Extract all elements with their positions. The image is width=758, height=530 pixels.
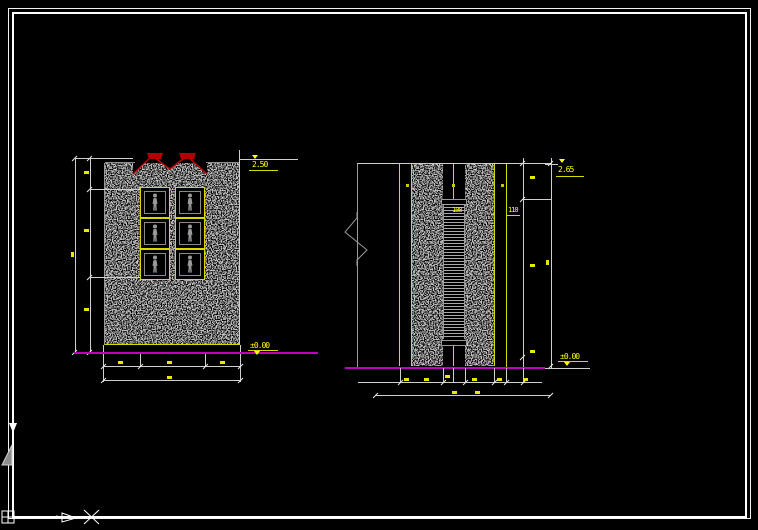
dim-text-illegible (71, 252, 74, 257)
frame-mat (144, 191, 166, 214)
break-symbol-icon (340, 212, 372, 266)
border-footer-glyphs (0, 505, 110, 529)
frame-mat (179, 253, 201, 276)
hatch-marker (406, 184, 409, 187)
level-value-bottom: ±0.00 (560, 353, 579, 361)
panel-cap-bottom (441, 340, 467, 346)
dim-line (551, 158, 552, 368)
person-figure-icon (185, 255, 195, 274)
level-underline (558, 361, 588, 362)
pen-arrow-icon (62, 513, 76, 522)
level-value-bottom: ±0.00 (250, 342, 269, 350)
dim-text-illegible (472, 378, 477, 381)
picture-frame (140, 249, 170, 280)
dim-line (75, 158, 76, 353)
level-value-top: 2.65 (558, 166, 573, 174)
person-figure-icon (150, 255, 160, 274)
dim-ext-line (90, 189, 140, 190)
dim-line (103, 380, 240, 381)
wall-right-edge (239, 150, 240, 345)
section-line (399, 163, 400, 366)
border-arrow-down-icon (0, 415, 30, 475)
picture-frame (175, 249, 205, 280)
hatch-edge-line (494, 163, 495, 366)
dim-ext-line (90, 277, 140, 278)
dim-line (375, 395, 550, 396)
level-triangle-icon (559, 159, 565, 163)
wall-left-edge (104, 163, 105, 345)
dim-text-illegible (84, 171, 89, 174)
dim-text-illegible (84, 308, 89, 311)
level-triangle-icon (254, 351, 260, 355)
offset-dim-text: 110 (508, 207, 518, 214)
dim-text-illegible (167, 361, 172, 364)
dim-text-illegible (523, 378, 528, 381)
section-hatch-right (465, 163, 494, 366)
level-triangle-icon (252, 155, 258, 159)
dim-ext-line (453, 368, 454, 382)
picture-frame (140, 187, 170, 218)
person-figure-icon (150, 224, 160, 243)
dim-underline (506, 215, 520, 216)
louver-panel (443, 204, 465, 339)
level-underline (248, 350, 278, 351)
dim-text-illegible (84, 229, 89, 232)
dim-text-illegible (167, 376, 172, 379)
level-line (545, 368, 590, 369)
dim-text-illegible (497, 378, 502, 381)
cad-viewport[interactable]: 2.50 ±0.00 100 110 (0, 0, 758, 530)
dim-line (103, 366, 240, 367)
level-underline (556, 176, 584, 177)
hatch-edge-line (411, 163, 412, 366)
picture-frame (140, 218, 170, 249)
dim-text-illegible (546, 260, 549, 265)
panel-centerline (453, 345, 454, 366)
section-hatch-left (412, 163, 443, 366)
dim-line (523, 158, 524, 368)
person-figure-icon (150, 193, 160, 212)
level-line (545, 164, 558, 165)
ground-line (345, 367, 545, 369)
dim-text-illegible (404, 378, 409, 381)
dim-text-illegible (530, 264, 535, 267)
level-underline (249, 170, 278, 171)
wall-hatch (105, 163, 240, 345)
level-triangle-icon (564, 362, 570, 366)
frame-mat (179, 191, 201, 214)
dim-line (358, 382, 542, 383)
person-figure-icon (185, 224, 195, 243)
dim-text-illegible (530, 176, 535, 179)
dim-text-illegible (424, 378, 429, 381)
wall-base-line (105, 344, 240, 345)
dim-text-illegible (445, 375, 450, 378)
frame-mat (144, 253, 166, 276)
picture-frame (175, 187, 205, 218)
picture-frame (175, 218, 205, 249)
panel-centerline (453, 163, 454, 200)
dim-ext-line (75, 158, 133, 159)
hatch-marker (452, 184, 455, 187)
dim-ext-line (523, 199, 551, 200)
person-figure-icon (185, 193, 195, 212)
hatch-marker (501, 184, 504, 187)
ground-line (74, 352, 318, 354)
level-value-top: 2.50 (252, 161, 267, 169)
frame-mat (144, 222, 166, 245)
panel-dim-text: 100 (452, 207, 462, 214)
downlights-icon (128, 150, 220, 180)
dim-text-illegible (475, 391, 480, 394)
frame-mat (179, 222, 201, 245)
dim-text-illegible (452, 391, 457, 394)
level-line (240, 159, 298, 160)
section-line (506, 163, 507, 368)
dim-text-illegible (118, 361, 123, 364)
dim-text-illegible (220, 361, 225, 364)
dim-text-illegible (530, 350, 535, 353)
